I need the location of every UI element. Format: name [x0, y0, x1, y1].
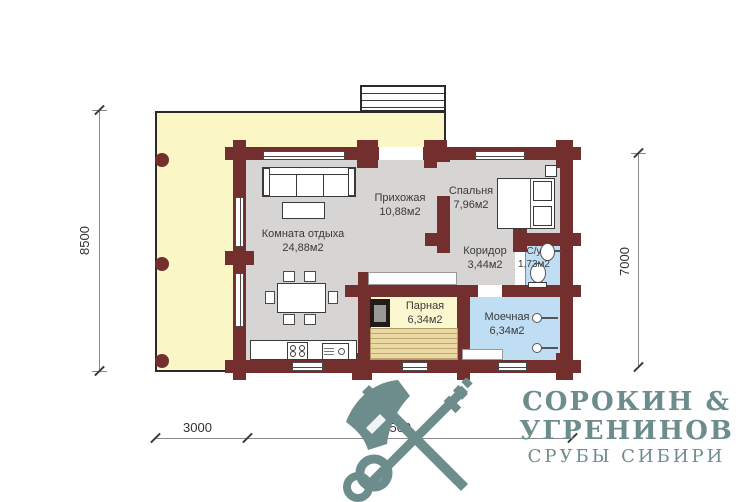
- sauna-stove: [370, 299, 390, 327]
- log-joint: [345, 285, 358, 297]
- dimension-label-3000: 3000: [183, 420, 212, 435]
- log-joint: [225, 147, 254, 160]
- burner-icon: [290, 351, 296, 357]
- logo-line-3: СРУБЫ СИБИРИ: [500, 445, 753, 468]
- chair: [283, 314, 295, 325]
- burner-icon: [299, 351, 305, 357]
- shower-head-icon: [532, 343, 542, 353]
- kitchen-sink: [322, 343, 349, 360]
- room-label-spalnya: Спальня7,96м2: [449, 185, 493, 213]
- hallway-bench: [368, 272, 457, 285]
- log-joint: [555, 285, 581, 297]
- sauna-stove-top: [374, 305, 386, 322]
- logo-line-2: УГРЕНИНОВ: [500, 417, 753, 446]
- sofa-armrest: [348, 168, 355, 196]
- dining-table: [277, 283, 326, 313]
- pillow: [533, 181, 552, 201]
- log-joint: [233, 353, 246, 380]
- logo-text: СОРОКИН & УГРЕНИНОВ СРУБЫ СИБИРИ: [500, 388, 753, 469]
- nightstand: [545, 165, 557, 177]
- log-joint: [555, 233, 581, 246]
- room-label-moechnaya: Моечная6,34м2: [484, 311, 529, 339]
- shower-arm: [540, 317, 558, 319]
- terrace-post: [155, 354, 169, 368]
- logo: СОРОКИН & УГРЕНИНОВ СРУБЫ СИБИРИ: [336, 378, 753, 502]
- dimension-line-left: [99, 110, 100, 372]
- sofa-seat-divider: [296, 174, 297, 196]
- room-label-su: С/у1,73м2: [518, 246, 550, 271]
- wall: [560, 147, 573, 373]
- shower-arm: [540, 347, 558, 349]
- coffee-table: [282, 202, 325, 219]
- dimension-label-8500: 8500: [77, 226, 92, 255]
- window: [402, 362, 428, 371]
- window: [498, 362, 527, 371]
- toilet-tank: [528, 282, 547, 288]
- window: [263, 151, 345, 160]
- window: [475, 151, 525, 160]
- window: [292, 362, 323, 371]
- log-joint: [425, 233, 450, 246]
- sofa-backrest: [269, 168, 349, 175]
- room-label-parnaya: Парная6,34м2: [406, 300, 444, 328]
- shower-head-icon: [532, 313, 542, 323]
- entrance-door-opening: [379, 147, 423, 160]
- terrace-post: [155, 153, 169, 167]
- log-joint: [225, 251, 254, 265]
- logo-line-1: СОРОКИН &: [500, 388, 753, 417]
- chair: [328, 291, 338, 304]
- terrace-post: [155, 257, 169, 271]
- dimension-line-right: [638, 153, 639, 368]
- entrance-steps: [360, 85, 446, 112]
- washbasin-tap: [554, 250, 561, 252]
- log-joint: [553, 360, 581, 373]
- room-label-komnata-otdyha: Комната отдыха24,88м2: [262, 228, 345, 256]
- window: [235, 197, 244, 247]
- blanket-line: [530, 179, 531, 228]
- room-label-koridor: Коридор3,44м2: [463, 245, 506, 273]
- log-joint: [357, 140, 378, 168]
- room-label-prihozhaya: Прихожая10,88м2: [375, 192, 426, 220]
- sofa: [262, 167, 356, 197]
- chair: [304, 271, 316, 282]
- moechnaya-door-opening: [478, 285, 502, 297]
- sofa-seat-divider: [323, 174, 324, 196]
- washroom-bench: [462, 349, 503, 360]
- floor-plan: 8500 7000 3000 10500: [0, 0, 753, 502]
- stove: [287, 342, 308, 360]
- window: [235, 273, 244, 327]
- drainboard: [324, 346, 334, 357]
- sauna-benches: [370, 328, 458, 360]
- chair: [304, 314, 316, 325]
- sink-bowl: [338, 348, 345, 355]
- chair: [265, 291, 275, 304]
- crossed-axe-and-key-icon: [336, 378, 494, 502]
- dimension-label-7000: 7000: [617, 247, 632, 276]
- pillow: [533, 206, 552, 226]
- chair: [283, 271, 295, 282]
- log-joint: [553, 147, 581, 160]
